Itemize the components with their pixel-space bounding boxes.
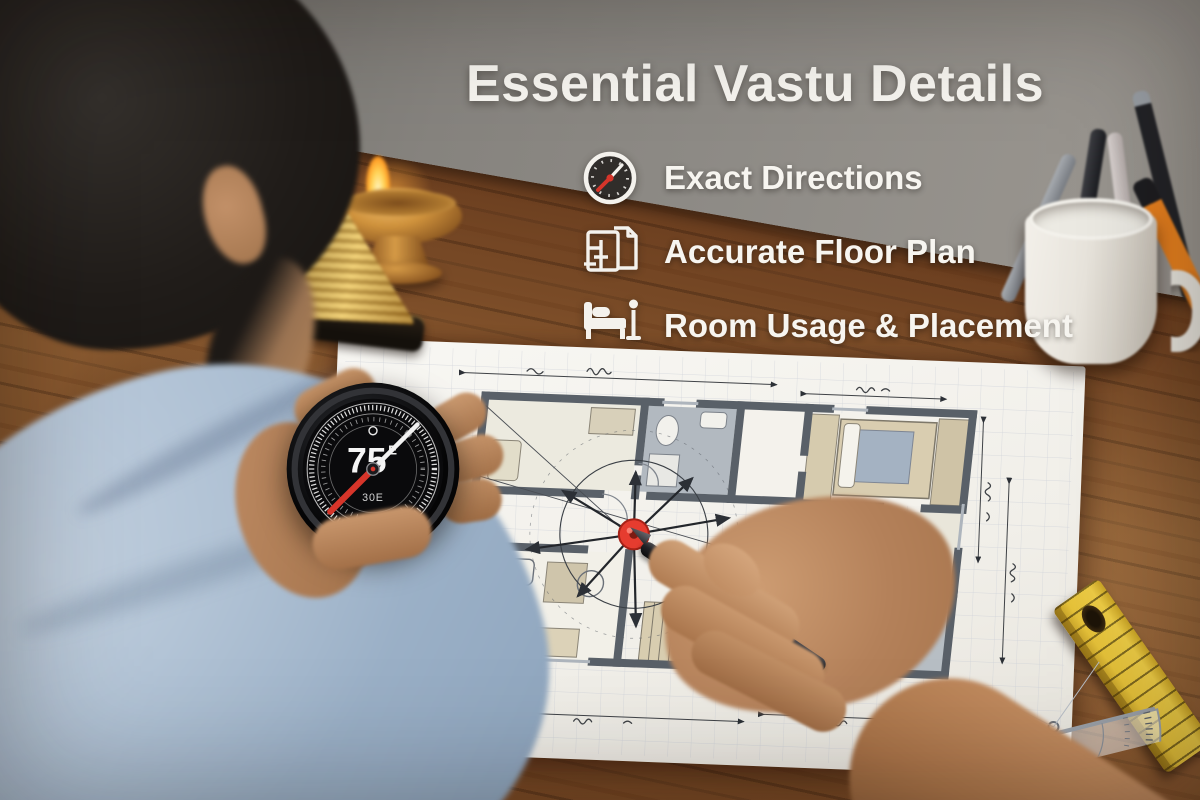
feature-accurate-floor-plan: Accurate Floor Plan bbox=[582, 224, 1062, 279]
feature-list: Exact Directions Accurate Floor Plan bbox=[582, 150, 1062, 353]
compass-icon bbox=[582, 150, 638, 206]
feature-label: Exact Directions bbox=[664, 159, 923, 197]
floor-plan-icon bbox=[582, 224, 638, 280]
feature-exact-directions: Exact Directions bbox=[582, 150, 1062, 205]
page-title: Essential Vastu Details bbox=[466, 54, 1106, 114]
feature-label: Room Usage & Placement bbox=[664, 307, 1073, 345]
feature-room-usage: Room Usage & Placement bbox=[582, 298, 1062, 353]
compass-sub-label: 30E bbox=[362, 492, 384, 504]
bed-icon bbox=[582, 298, 638, 354]
feature-label: Accurate Floor Plan bbox=[664, 233, 976, 271]
vastu-consultation-photo: 75 E 30E Essential Vastu Details bbox=[0, 0, 1200, 800]
